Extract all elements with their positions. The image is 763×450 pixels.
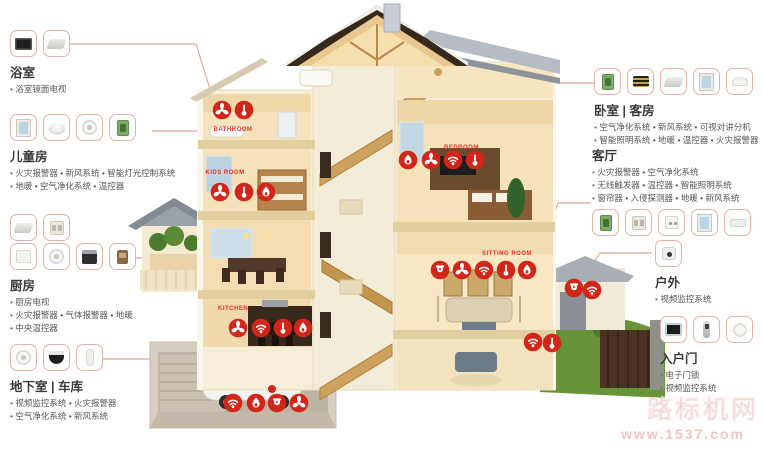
callout-title: 地下室 | 车库 — [10, 376, 117, 395]
window-icon — [691, 209, 718, 236]
callout-item: 空气净化系统 • 新风系统 • 可视对讲分机 — [594, 121, 758, 134]
callout-kitchen: 厨房 厨房电视 火灾报警器 • 气体报警器 • 地暖 中央温控器 — [10, 214, 136, 334]
callout-kids-room: 儿童房 火灾报警器 • 新风系统 • 智能灯光控制系统 地暖 • 空气净化系统 … — [10, 114, 175, 193]
callout-title: 儿童房 — [10, 146, 175, 165]
control-panel-icon — [592, 209, 619, 236]
air-purifier-icon — [10, 243, 37, 270]
fan-badge-icon — [422, 151, 441, 170]
wall-switch-icon — [625, 209, 652, 236]
curved-speaker-icon — [726, 68, 753, 95]
callout-item: 厨房电视 — [10, 296, 136, 309]
floor-slab — [198, 211, 315, 220]
outdoor-device-icons — [655, 240, 711, 267]
thermometer-badge-icon — [235, 101, 254, 120]
callout-item: 地暖 • 空气净化系统 • 温控器 — [10, 180, 175, 193]
kids-room — [203, 149, 311, 211]
callout-bedroom: 卧室 | 客房 空气净化系统 • 新风系统 • 可视对讲分机 智能照明系统 • … — [594, 68, 758, 147]
keypad-icon — [658, 209, 685, 236]
kitchen-device-icons-row1 — [10, 214, 136, 241]
kitchen-device-icons-row2 — [10, 243, 136, 270]
garden — [538, 256, 665, 398]
gas-detector-icon — [43, 243, 70, 270]
flame-badge-icon — [399, 151, 418, 170]
door-lock-icon — [693, 316, 720, 343]
air-vent-icon — [627, 68, 654, 95]
callout-title: 入户门 — [660, 348, 753, 367]
callout-item: 火灾报警器 • 新风系统 • 智能灯光控制系统 — [10, 167, 175, 180]
wifi-badge-icon — [475, 261, 494, 280]
fan-badge-icon — [211, 183, 230, 202]
fan-badge-icon — [453, 261, 472, 280]
kids-room-device-icons — [10, 114, 175, 141]
room-label-bedroom: BEDROOM — [444, 145, 479, 151]
callout-basement-garage: 地下室 | 车库 视频监控系统 • 火灾报警器 空气净化系统 • 新风系统 — [10, 344, 117, 423]
flame-badge-icon — [247, 394, 266, 413]
callout-item: 火灾报警器 • 空气净化系统 — [592, 166, 751, 179]
smoke-detector-icon — [76, 114, 103, 141]
thermostat-icon — [109, 243, 136, 270]
callout-item: 窗帘器 • 入侵探测器 • 地暖 • 新风系统 — [592, 192, 751, 205]
floor-slab — [393, 222, 555, 232]
room-label-kids-room: KIDS ROOM — [205, 170, 244, 176]
entrance-device-icons — [660, 316, 753, 343]
callout-item: 视频监控系统 • 火灾报警器 — [10, 397, 117, 410]
thermometer-badge-icon — [235, 183, 254, 202]
wifi-badge-icon — [444, 151, 463, 170]
callout-item: 视频监控系统 — [660, 382, 753, 395]
wall-switch-icon — [43, 214, 70, 241]
window-icon — [693, 68, 720, 95]
room-label-sitting-room: SITTING ROOM — [482, 251, 532, 257]
basement-device-icons — [10, 344, 117, 371]
callout-title: 浴室 — [10, 62, 70, 81]
dome-camera-icon — [43, 344, 70, 371]
oven-icon — [76, 243, 103, 270]
video-intercom-icon — [660, 316, 687, 343]
fan-badge-icon — [229, 319, 248, 338]
ceiling-lamp-icon — [43, 114, 70, 141]
flame-badge-icon — [294, 319, 313, 338]
control-panel-icon — [109, 114, 136, 141]
thermometer-badge-icon — [497, 261, 516, 280]
fan-badge-icon — [213, 101, 232, 120]
callout-title: 卧室 | 客房 — [594, 100, 758, 119]
living-room-device-icons — [592, 209, 751, 236]
smoke-detector-icon — [10, 344, 37, 371]
camera-badge-icon — [565, 279, 584, 298]
callout-living-room: 客厅 火灾报警器 • 空气净化系统 无线触发器 • 温控器 • 智能照明系统 窗… — [592, 145, 751, 238]
callout-item: 空气净化系统 • 新风系统 — [10, 410, 117, 423]
wifi-badge-icon — [583, 281, 602, 300]
callout-outdoor: 户外 视频监控系统 — [655, 240, 711, 306]
dining-room — [203, 220, 311, 290]
thermometer-badge-icon — [466, 151, 485, 170]
callout-item: 电子门锁 — [660, 369, 753, 382]
wifi-badge-icon — [224, 394, 243, 413]
flat-panel-icon — [10, 214, 37, 241]
thermometer-badge-icon — [543, 334, 562, 353]
sitting-room — [397, 232, 553, 330]
bedroom-device-icons — [594, 68, 758, 95]
control-panel-icon — [594, 68, 621, 95]
wifi-badge-icon — [524, 333, 543, 352]
callout-item: 无线触发器 • 温控器 • 智能照明系统 — [592, 179, 751, 192]
floor-slab — [198, 290, 315, 299]
doorbell-icon — [726, 316, 753, 343]
callout-title: 客厅 — [592, 145, 751, 164]
callout-bathroom: 浴室 浴室镜面电视 — [10, 30, 70, 96]
callout-entrance: 入户门 电子门锁 视频监控系统 — [660, 316, 753, 395]
wifi-router-icon — [724, 209, 751, 236]
flame-badge-icon — [518, 261, 537, 280]
callout-item: 中央温控器 — [10, 322, 136, 335]
window-icon — [10, 114, 37, 141]
callout-title: 户外 — [655, 272, 711, 291]
callout-title: 厨房 — [10, 275, 136, 294]
sensor-icon — [76, 344, 103, 371]
flame-badge-icon — [257, 183, 276, 202]
callout-item: 浴室镜面电视 — [10, 83, 70, 96]
flat-panel-icon — [660, 68, 687, 95]
room-label-kitchen: KITCHEN — [218, 306, 248, 312]
callout-item: 火灾报警器 • 气体报警器 • 地暖 — [10, 309, 136, 322]
floor-slab — [198, 140, 315, 149]
camera-badge-icon — [431, 261, 450, 280]
ptz-camera-icon — [655, 240, 682, 267]
ceiling-panel-icon — [43, 30, 70, 57]
room-label-bathroom: BATHROOM — [214, 127, 253, 133]
bathroom-device-icons — [10, 30, 70, 57]
camera-badge-icon — [268, 394, 287, 413]
thermometer-badge-icon — [274, 319, 293, 338]
fan-badge-icon — [290, 394, 309, 413]
car-logo-badge — [268, 385, 276, 393]
smart-home-infographic: BATHROOM KIDS ROOM KITCHEN BEDROOM SITTI… — [0, 0, 763, 450]
mirror-tv-icon — [10, 30, 37, 57]
callout-item: 视频监控系统 — [655, 293, 711, 306]
wifi-badge-icon — [252, 319, 271, 338]
